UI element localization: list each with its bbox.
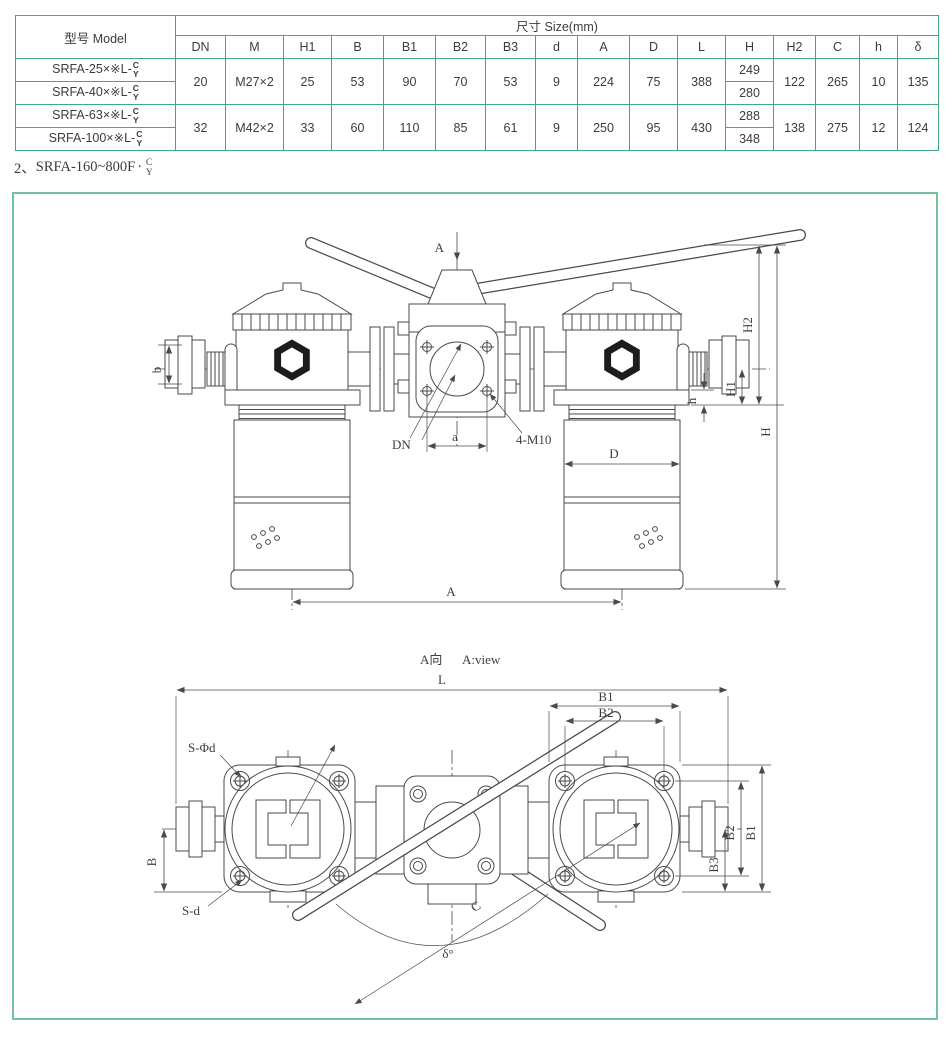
cell-h280: 280 [726, 82, 774, 105]
cell-delta: 124 [898, 105, 939, 151]
cell-a: 224 [578, 59, 630, 105]
dim-label-a-small: a [452, 429, 458, 444]
right-cover-top [549, 757, 680, 902]
col-d: d [536, 36, 578, 59]
duplex-filter-drawing: A b DN 4-M10 a D A [14, 194, 936, 1018]
col-M: M [226, 36, 284, 59]
cell-l: 388 [678, 59, 726, 105]
cell-b1: 90 [384, 59, 436, 105]
cell-h1: 33 [284, 105, 332, 151]
dim-label-D: D [609, 446, 618, 461]
label-s-d: S-d [182, 903, 201, 918]
table-row: SRFA-25×※L-CY 20 M27×2 25 53 90 70 53 9 … [16, 59, 939, 82]
drawing-frame: A b DN 4-M10 a D A [12, 192, 938, 1020]
handle-bars-front [311, 235, 800, 294]
view-title-cn: A向 [420, 652, 442, 667]
cell-b3: 61 [486, 105, 536, 151]
dim-label-H: H [758, 427, 773, 436]
datasheet-page: 型号 Model 尺寸 Size(mm) DN M H1 B B1 B2 B3 … [0, 0, 950, 1059]
left-filter-front [165, 283, 360, 589]
dim-label-C: C [468, 898, 483, 915]
model-srfa100: SRFA-100×※L-CY [16, 128, 176, 151]
view-arrow-label: A [435, 240, 445, 255]
col-H2: H2 [774, 36, 816, 59]
valve-port-circle [430, 342, 484, 396]
cell-delta: 135 [898, 59, 939, 105]
model-srfa63: SRFA-63×※L-CY [16, 105, 176, 128]
cell-h1: 25 [284, 59, 332, 105]
dim-label-h-small: h [684, 397, 699, 404]
cell-dn: 20 [176, 59, 226, 105]
cell-c: 265 [816, 59, 860, 105]
note-dot: · [137, 159, 142, 176]
col-C: C [816, 36, 860, 59]
note-index: 2、 [14, 157, 36, 178]
top-view: C δ° L B1 B2 S-Φd S-d [144, 672, 771, 1004]
col-L: L [678, 36, 726, 59]
dimension-table: 型号 Model 尺寸 Size(mm) DN M H1 B B1 B2 B3 … [15, 15, 939, 151]
dim-label-B1-right: B1 [743, 825, 758, 840]
dim-label-A: A [446, 584, 456, 599]
col-B1: B1 [384, 36, 436, 59]
cell-b: 53 [332, 59, 384, 105]
col-H: H [726, 36, 774, 59]
cell-hs: 12 [860, 105, 898, 151]
col-B3: B3 [486, 36, 536, 59]
col-D: D [630, 36, 678, 59]
cell-D: 95 [630, 105, 678, 151]
col-h: h [860, 36, 898, 59]
cell-h249: 249 [726, 59, 774, 82]
dim-label-B3: B3 [706, 857, 721, 872]
dim-label-B2-top: B2 [598, 705, 613, 720]
label-dn: DN [392, 437, 411, 452]
cell-d: 9 [536, 59, 578, 105]
model-header: 型号 Model [16, 16, 176, 59]
size-header: 尺寸 Size(mm) [176, 16, 939, 36]
cell-d: 9 [536, 105, 578, 151]
cell-h288: 288 [726, 105, 774, 128]
cell-h2: 122 [774, 59, 816, 105]
label-4-m10: 4-M10 [516, 432, 551, 447]
dim-label-B2-right: B2 [722, 825, 737, 840]
col-delta: δ [898, 36, 939, 59]
cell-b1: 110 [384, 105, 436, 151]
valve-top [355, 776, 549, 904]
cell-D: 75 [630, 59, 678, 105]
cell-hs: 10 [860, 59, 898, 105]
col-B2: B2 [436, 36, 486, 59]
col-B: B [332, 36, 384, 59]
col-H1: H1 [284, 36, 332, 59]
front-view: A b DN 4-M10 a D A [149, 232, 800, 610]
section-note: 2、SRFA-160~800F·CY [14, 157, 153, 178]
col-A: A [578, 36, 630, 59]
dim-label-b: b [149, 367, 164, 374]
cell-m: M27×2 [226, 59, 284, 105]
cell-a: 250 [578, 105, 630, 151]
cell-b3: 53 [486, 59, 536, 105]
right-port-top [680, 801, 728, 857]
handle-hub [428, 270, 486, 304]
dim-label-L: L [438, 672, 446, 687]
col-DN: DN [176, 36, 226, 59]
cell-b2: 85 [436, 105, 486, 151]
cell-b2: 70 [436, 59, 486, 105]
cell-h348: 348 [726, 128, 774, 151]
dim-label-B1-top: B1 [598, 689, 613, 704]
label-s-phi-d: S-Φd [188, 740, 216, 755]
cell-l: 430 [678, 105, 726, 151]
cell-h2: 138 [774, 105, 816, 151]
dim-label-H2: H2 [740, 317, 755, 333]
dim-label-H1: H1 [723, 381, 738, 397]
model-srfa40: SRFA-40×※L-CY [16, 82, 176, 105]
dim-label-B: B [144, 857, 159, 866]
cell-b: 60 [332, 105, 384, 151]
cell-dn: 32 [176, 105, 226, 151]
dim-label-delta: δ° [442, 946, 453, 961]
right-filter-front [554, 283, 749, 589]
cell-c: 275 [816, 105, 860, 151]
left-port-top [176, 801, 224, 857]
cell-m: M42×2 [226, 105, 284, 151]
model-srfa25: SRFA-25×※L-CY [16, 59, 176, 82]
left-cover-top [224, 757, 355, 902]
note-model-range: SRFA-160~800F [36, 159, 135, 176]
table-row: SRFA-63×※L-CY 32 M42×2 33 60 110 85 61 9… [16, 105, 939, 128]
view-title-en: A:view [462, 652, 501, 667]
